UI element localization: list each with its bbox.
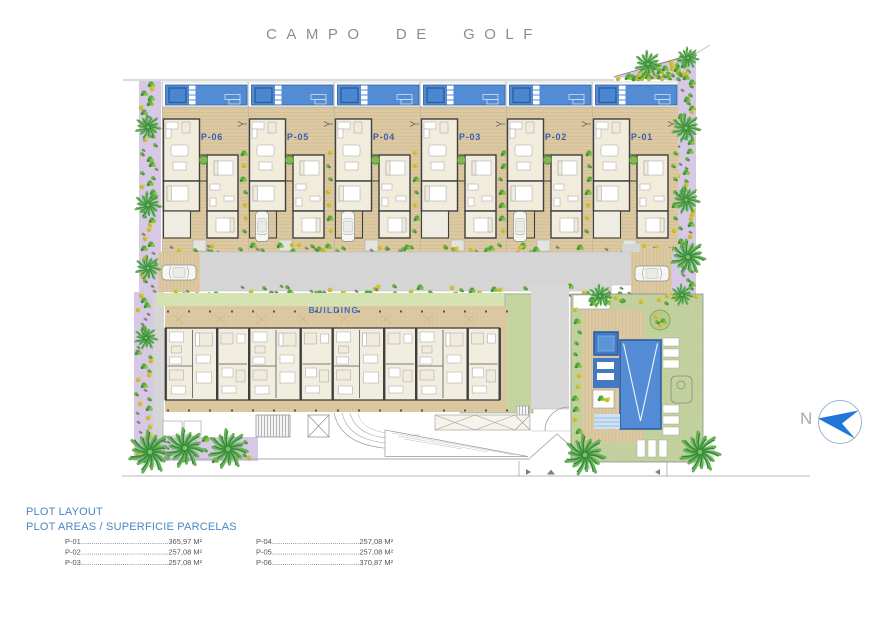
svg-text:BUILDING: BUILDING: [309, 305, 360, 315]
svg-text:P-05: P-05: [287, 132, 309, 142]
svg-text:P-06..........................: P-06....................................…: [256, 558, 394, 567]
svg-text:P-02: P-02: [545, 132, 567, 142]
svg-text:P-01..........................: P-01....................................…: [65, 537, 203, 546]
svg-text:PLOT AREAS / SUPERFICIE PARCEL: PLOT AREAS / SUPERFICIE PARCELAS: [26, 521, 237, 533]
svg-text:PLOT LAYOUT: PLOT LAYOUT: [26, 506, 103, 518]
svg-text:P-03: P-03: [459, 132, 481, 142]
svg-text:P-05..........................: P-05....................................…: [256, 548, 394, 557]
svg-text:P-04: P-04: [373, 132, 395, 142]
svg-text:P-01: P-01: [631, 132, 653, 142]
svg-text:N: N: [800, 409, 812, 428]
svg-text:P-06: P-06: [201, 132, 223, 142]
svg-text:CAMPO DE GOLF: CAMPO DE GOLF: [266, 26, 542, 43]
svg-text:P-02..........................: P-02....................................…: [65, 548, 203, 557]
svg-text:P-03..........................: P-03....................................…: [65, 558, 203, 567]
svg-text:P-04..........................: P-04....................................…: [256, 537, 394, 546]
